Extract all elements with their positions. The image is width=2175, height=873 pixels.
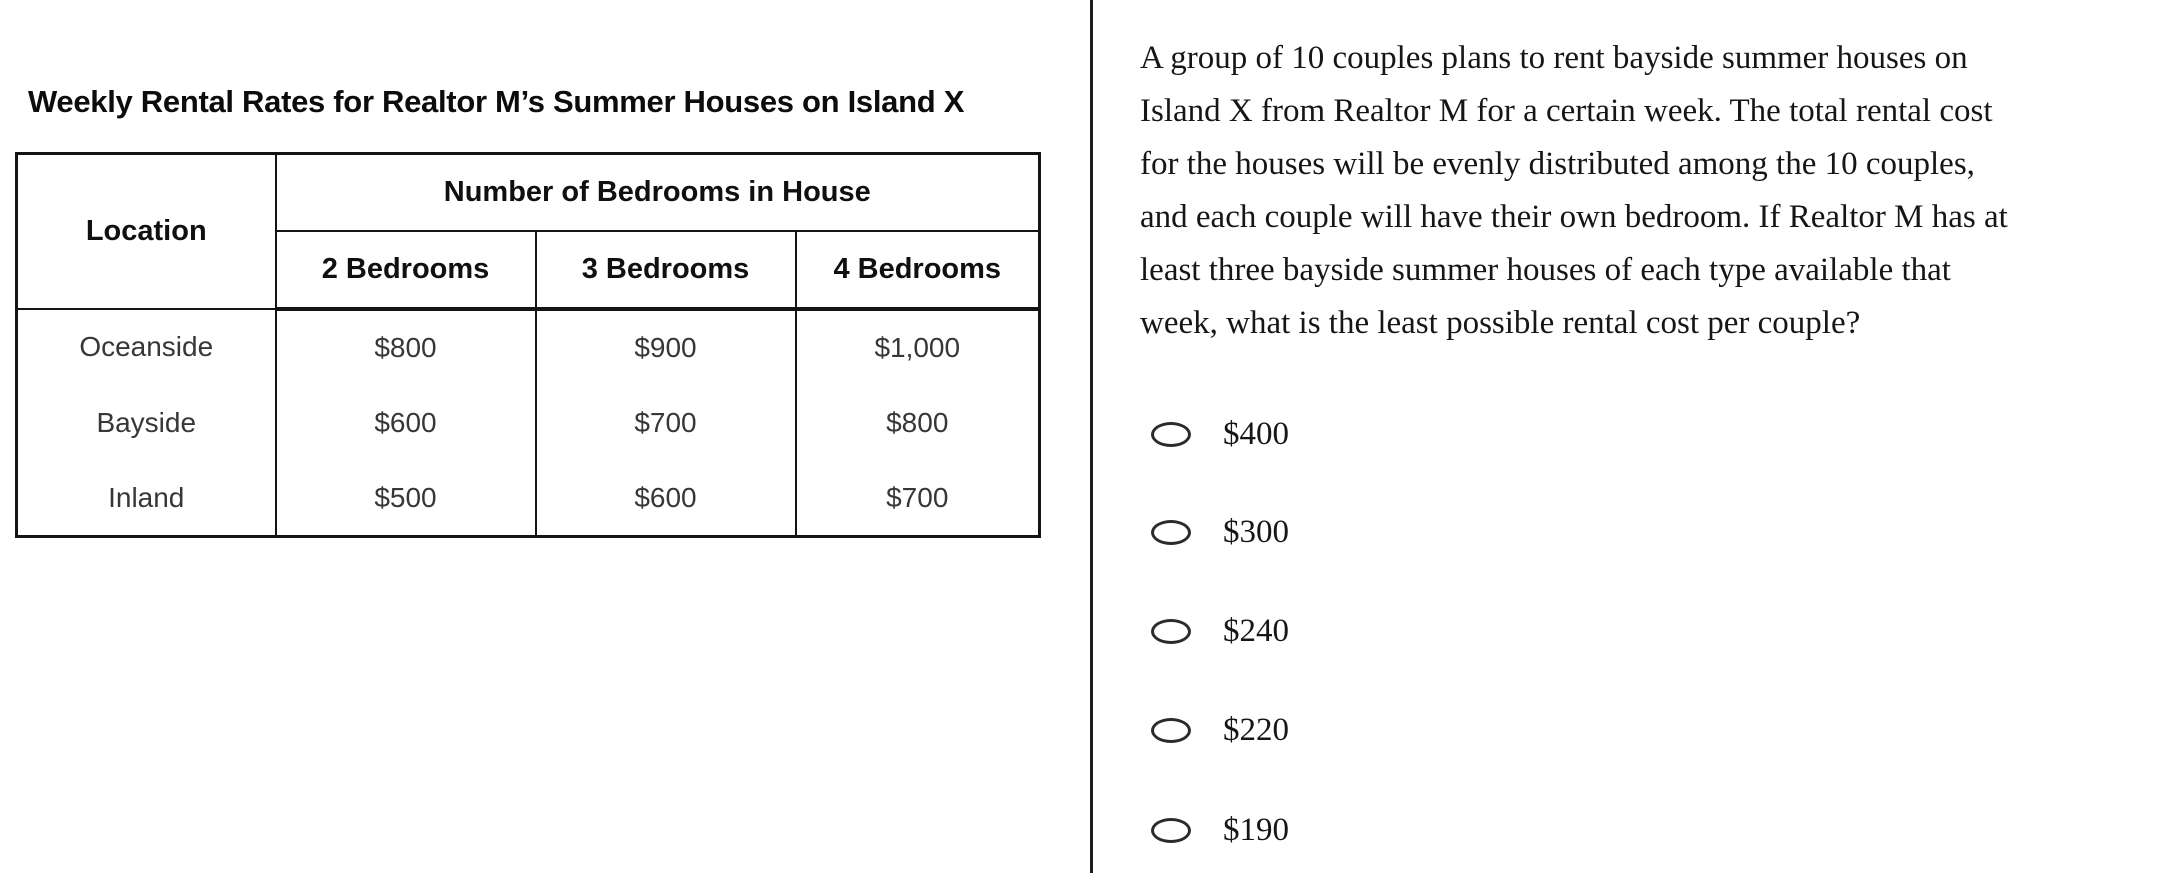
question-line: and each couple will have their own bedr…: [1140, 191, 2170, 244]
option-row-190[interactable]: $190: [1151, 808, 1289, 852]
cell-bayside-2br: $600: [276, 385, 536, 461]
cell-inland-4br: $700: [796, 461, 1040, 537]
radio-button[interactable]: [1151, 422, 1191, 447]
rental-rates-table: Location Number of Bedrooms in House 2 B…: [15, 152, 1041, 538]
option-label: $190: [1223, 812, 1289, 849]
radio-button[interactable]: [1151, 818, 1191, 843]
option-label: $300: [1223, 514, 1289, 551]
radio-button[interactable]: [1151, 619, 1191, 644]
table-title: Weekly Rental Rates for Realtor M’s Summ…: [28, 84, 964, 120]
question-line: for the houses will be evenly distribute…: [1140, 138, 2170, 191]
radio-button[interactable]: [1151, 520, 1191, 545]
table-row-oceanside: Oceanside $800 $900 $1,000: [17, 309, 1040, 385]
panel-divider: [1090, 0, 1093, 873]
table-row-inland: Inland $500 $600 $700: [17, 461, 1040, 537]
option-label: $220: [1223, 712, 1289, 749]
radio-button[interactable]: [1151, 718, 1191, 743]
table-row-bayside: Bayside $600 $700 $800: [17, 385, 1040, 461]
option-row-220[interactable]: $220: [1151, 708, 1289, 752]
cell-oceanside-3br: $900: [536, 309, 796, 385]
question-line: Island X from Realtor M for a certain we…: [1140, 85, 2170, 138]
cell-oceanside-2br: $800: [276, 309, 536, 385]
option-row-240[interactable]: $240: [1151, 609, 1289, 653]
question-text: A group of 10 couples plans to rent bays…: [1140, 32, 2170, 350]
question-line: A group of 10 couples plans to rent bays…: [1140, 32, 2170, 85]
cell-inland-3br: $600: [536, 461, 796, 537]
row-label-inland: Inland: [17, 461, 276, 537]
option-row-400[interactable]: $400: [1151, 412, 1289, 456]
row-label-bayside: Bayside: [17, 385, 276, 461]
cell-bayside-3br: $700: [536, 385, 796, 461]
column-header-3-bedrooms: 3 Bedrooms: [536, 231, 796, 309]
column-header-4-bedrooms: 4 Bedrooms: [796, 231, 1040, 309]
option-label: $240: [1223, 613, 1289, 650]
cell-inland-2br: $500: [276, 461, 536, 537]
location-header: Location: [17, 154, 276, 309]
cell-bayside-4br: $800: [796, 385, 1040, 461]
column-header-2-bedrooms: 2 Bedrooms: [276, 231, 536, 309]
option-label: $400: [1223, 416, 1289, 453]
question-line: week, what is the least possible rental …: [1140, 297, 2170, 350]
option-row-300[interactable]: $300: [1151, 510, 1289, 554]
question-line: least three bayside summer houses of eac…: [1140, 244, 2170, 297]
row-label-oceanside: Oceanside: [17, 309, 276, 385]
cell-oceanside-4br: $1,000: [796, 309, 1040, 385]
bedrooms-group-header: Number of Bedrooms in House: [276, 154, 1040, 231]
